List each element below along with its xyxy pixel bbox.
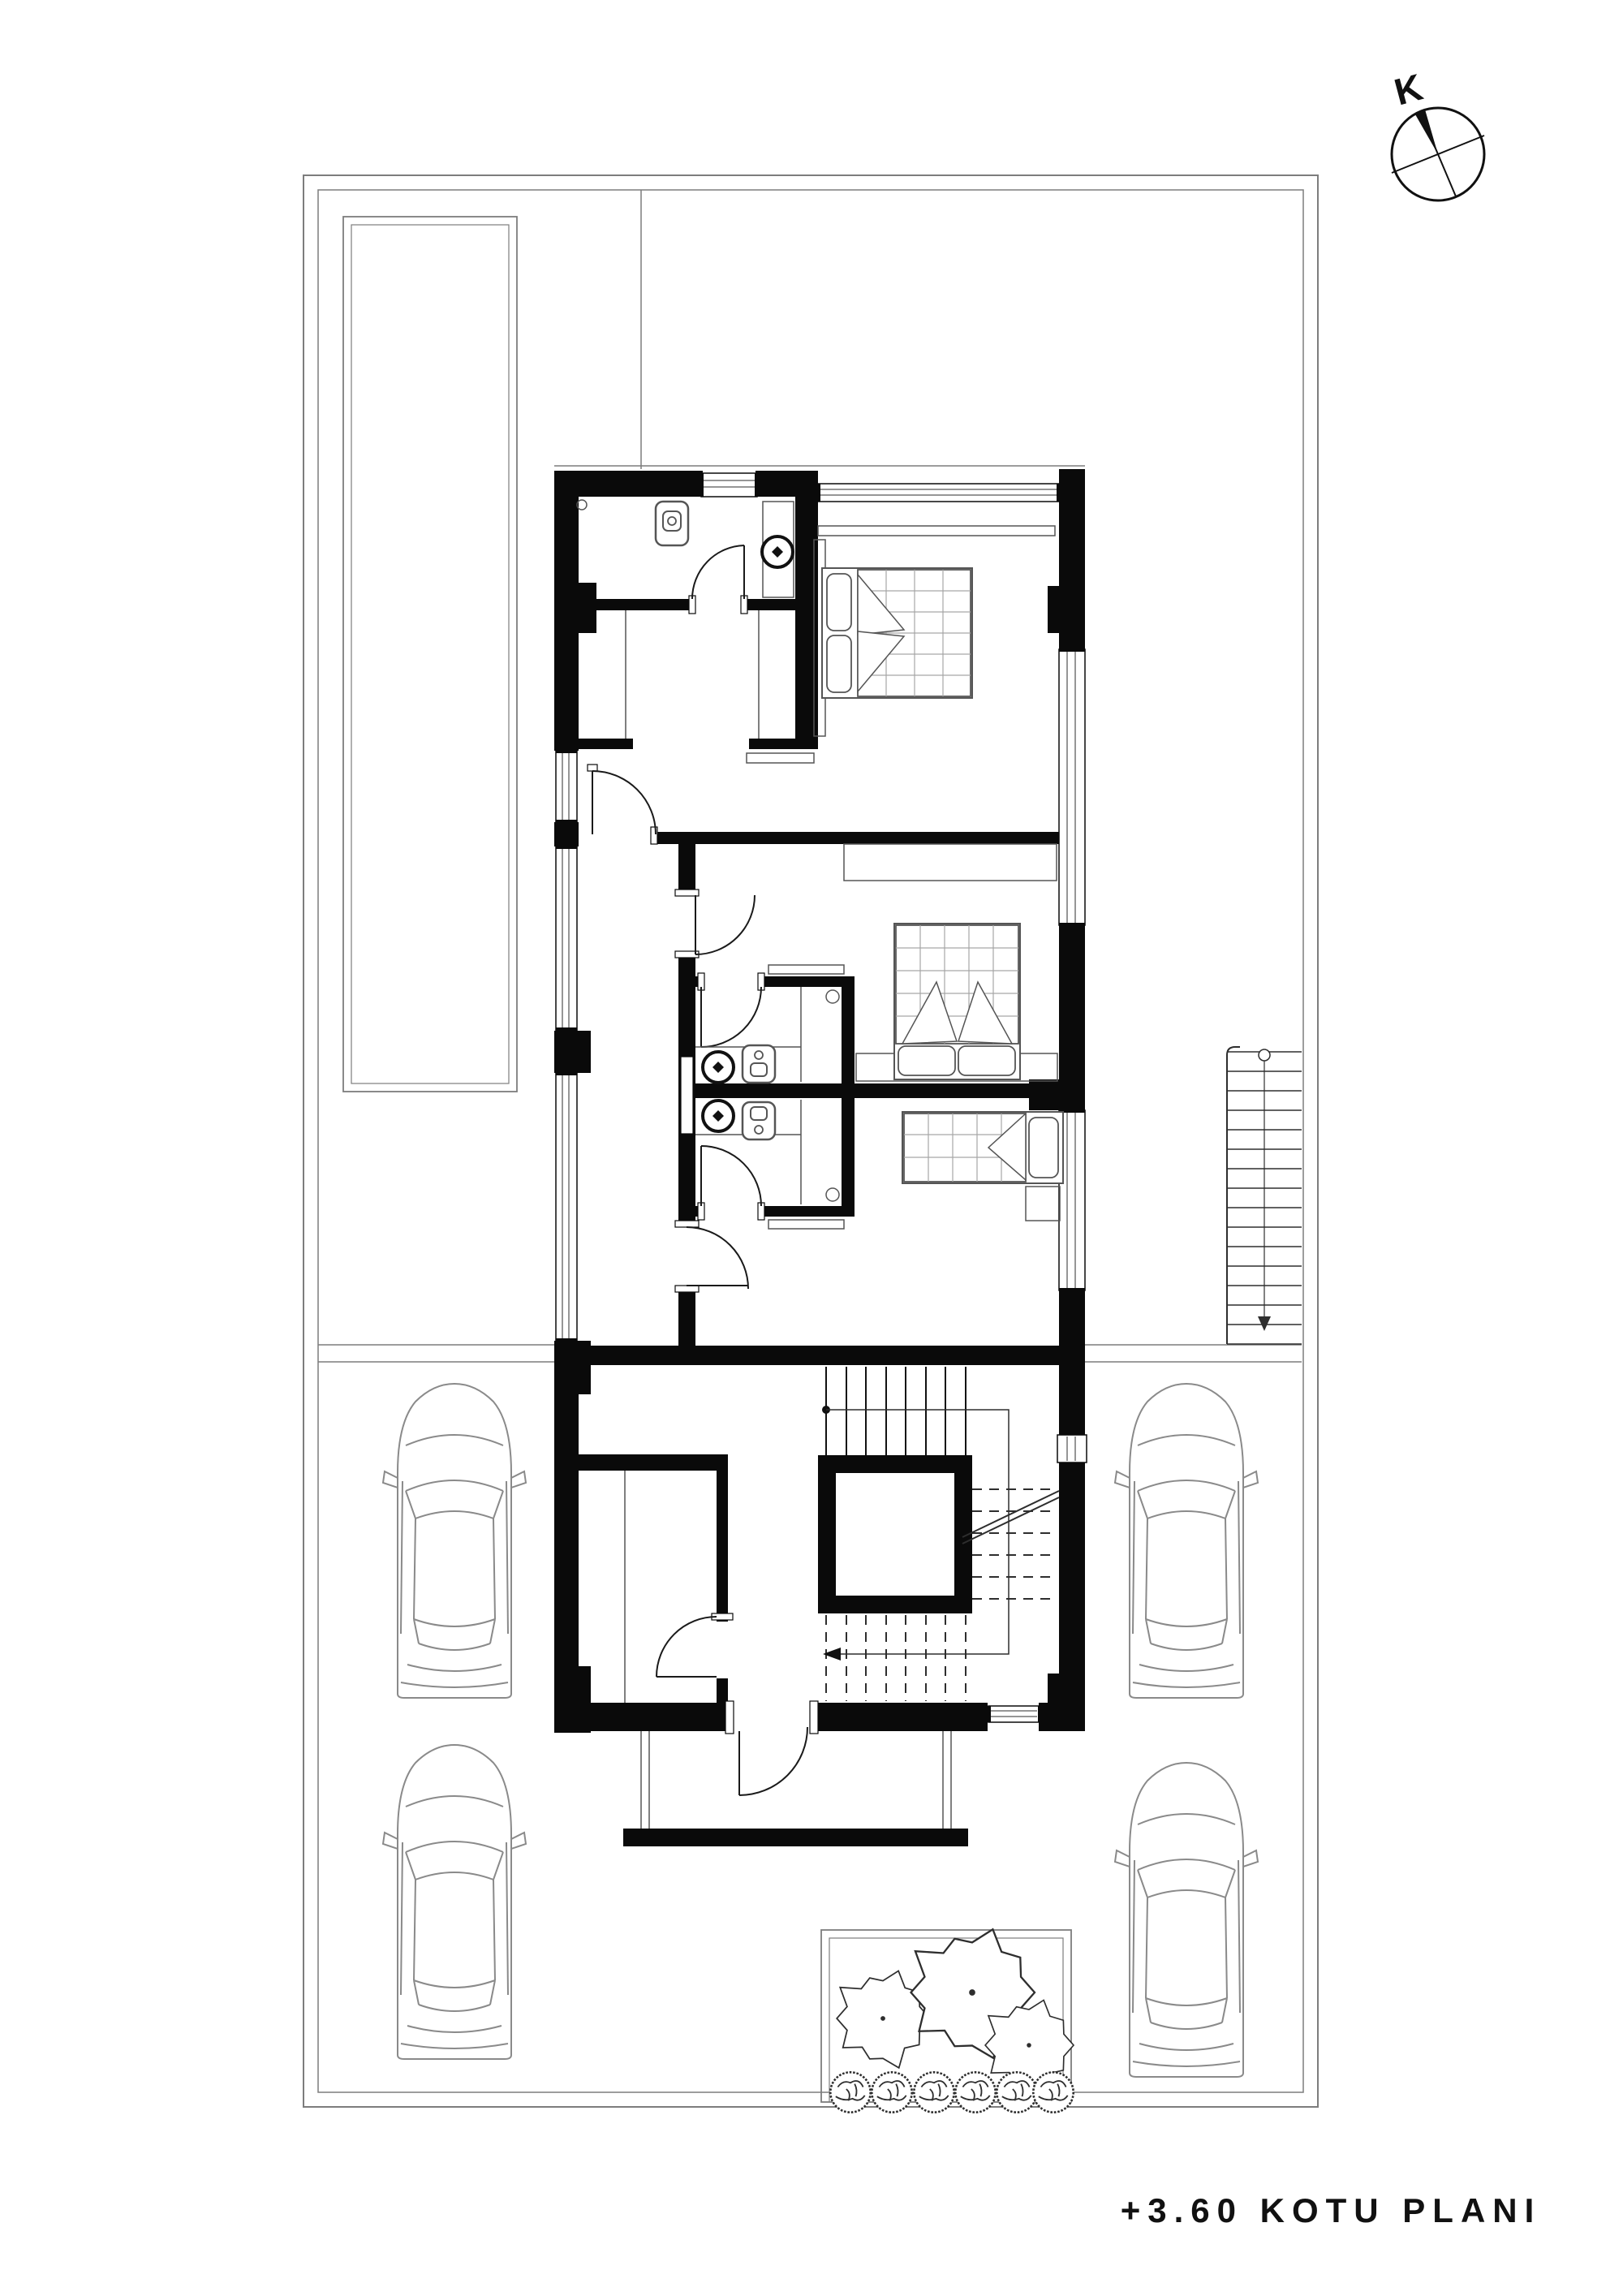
sink-icon bbox=[762, 536, 793, 567]
window-bottom bbox=[987, 1706, 1042, 1722]
bedside-table bbox=[1026, 1187, 1060, 1221]
stair-hall bbox=[818, 1367, 1059, 1701]
sheet-title: +3.60 KOTU PLANI bbox=[1121, 2191, 1542, 2229]
bedroom-2 bbox=[844, 844, 1057, 1081]
shelf bbox=[768, 965, 844, 974]
double-bed-2 bbox=[894, 924, 1020, 1079]
window-right-lower bbox=[1057, 1435, 1087, 1462]
toilet-icon bbox=[656, 502, 688, 545]
door-entry bbox=[725, 1701, 818, 1795]
floor-plan-sheet: K +3.60 KOTU PLANI bbox=[0, 0, 1623, 2296]
door-bath-b bbox=[698, 1146, 764, 1220]
window-bath-top bbox=[700, 473, 759, 497]
toilet-icon bbox=[743, 1102, 775, 1139]
stair-flight-side-dashed bbox=[972, 1489, 1057, 1599]
window-sill-line bbox=[818, 526, 1055, 536]
pillow bbox=[898, 1046, 955, 1075]
door-single-room bbox=[675, 1221, 748, 1292]
window-left-3 bbox=[556, 1071, 577, 1342]
shower-drain bbox=[826, 1188, 839, 1201]
car-1 bbox=[383, 1384, 526, 1698]
north-needle bbox=[1415, 110, 1438, 154]
car-2 bbox=[383, 1745, 526, 2059]
doors bbox=[588, 545, 818, 1795]
pillow bbox=[827, 635, 851, 692]
bathroom-top bbox=[577, 500, 794, 597]
shower-drain bbox=[826, 990, 839, 1003]
shelf bbox=[768, 1220, 844, 1229]
bedroom-1 bbox=[814, 540, 972, 736]
window-left-2 bbox=[556, 845, 577, 1032]
stair-break-line bbox=[962, 1491, 1059, 1537]
entry-porch bbox=[623, 1731, 968, 1846]
sink-icon bbox=[703, 1052, 734, 1083]
north-label: K bbox=[1390, 66, 1427, 114]
pillow bbox=[958, 1046, 1015, 1075]
window-left-1 bbox=[556, 749, 577, 824]
door-storage bbox=[657, 1613, 733, 1677]
title-block: +3.60 KOTU PLANI bbox=[1121, 2191, 1542, 2229]
landscape-bed bbox=[821, 1929, 1074, 2112]
plan-drawing: K +3.60 KOTU PLANI bbox=[0, 0, 1623, 2296]
elevator bbox=[818, 1455, 972, 1613]
pool-terrace bbox=[343, 217, 517, 1092]
door-bath-top bbox=[689, 545, 747, 614]
site-lines bbox=[318, 190, 1302, 1362]
single-bed-room bbox=[902, 1112, 1063, 1221]
stair-break-line bbox=[962, 1497, 1059, 1544]
pillow bbox=[827, 574, 851, 631]
duct-shaft bbox=[681, 1057, 693, 1134]
stair-flight-lower-dashed bbox=[826, 1615, 966, 1701]
door-bedroom2 bbox=[675, 890, 755, 958]
double-bed-1 bbox=[822, 568, 972, 698]
door-bath-a bbox=[698, 973, 764, 1047]
car-4 bbox=[1115, 1763, 1258, 2077]
window-bedroom1-top bbox=[816, 484, 1061, 502]
stair-direction-arrow bbox=[1258, 1316, 1271, 1331]
door-dressing bbox=[588, 765, 657, 844]
shelf bbox=[747, 753, 814, 763]
window-right-upper bbox=[1059, 648, 1085, 927]
north-compass: K bbox=[1390, 66, 1484, 200]
porch-slab bbox=[623, 1829, 968, 1846]
toilet-icon bbox=[743, 1045, 775, 1083]
single-bed bbox=[902, 1112, 1063, 1183]
sink-icon bbox=[703, 1101, 734, 1131]
stair-flight-upper bbox=[826, 1367, 966, 1455]
external-stair bbox=[1227, 1047, 1302, 1344]
pillow bbox=[1029, 1118, 1058, 1178]
wardrobe bbox=[844, 844, 1057, 881]
car-3 bbox=[1115, 1384, 1258, 1698]
